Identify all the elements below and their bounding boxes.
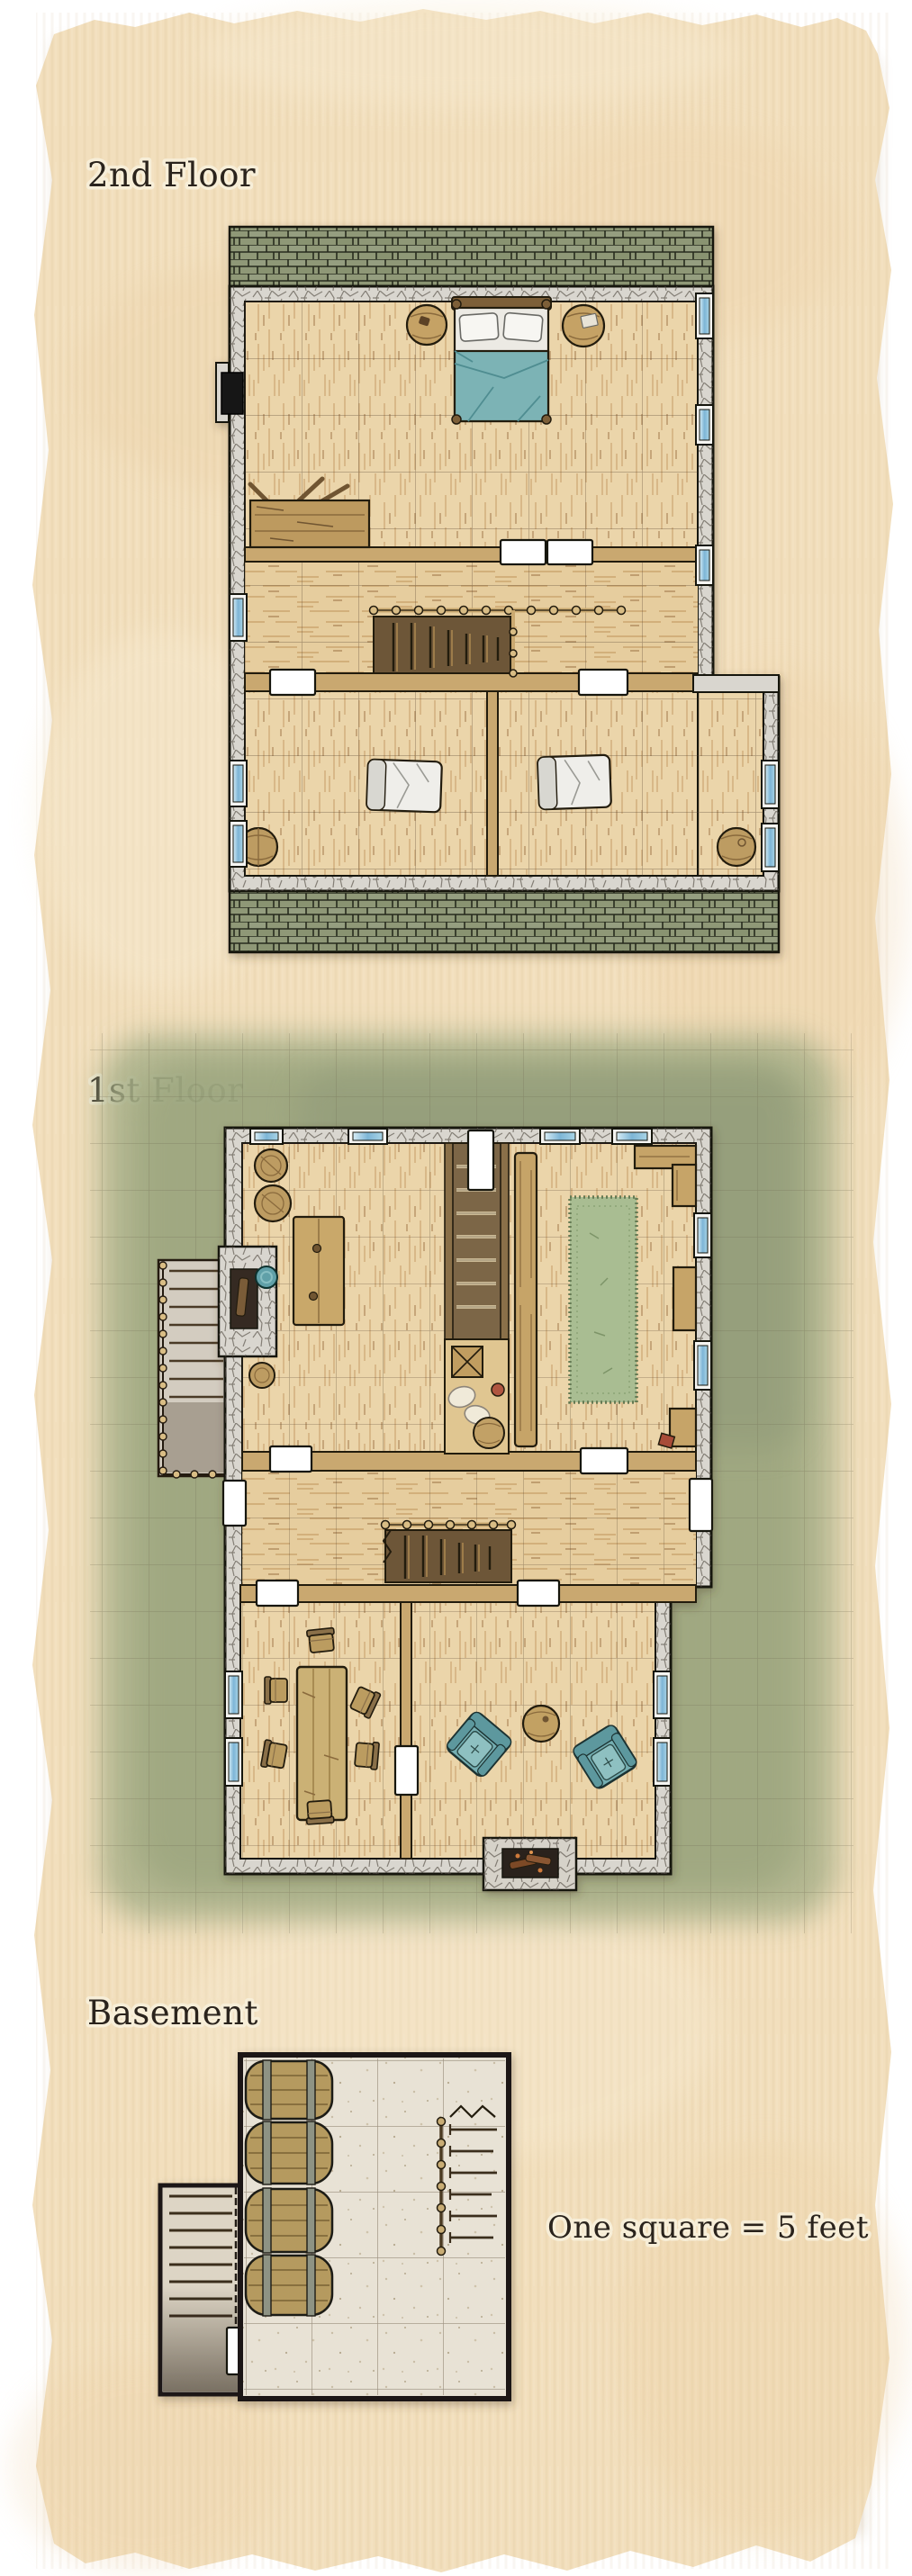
chair <box>261 1740 288 1770</box>
basement-entry-corridor <box>160 2185 246 2394</box>
window <box>694 1341 711 1390</box>
door-white <box>223 1481 246 1526</box>
chair <box>305 1800 334 1824</box>
south-fireplace <box>483 1838 576 1890</box>
window <box>654 1738 671 1786</box>
chair <box>307 1628 336 1653</box>
second-floor-label: 2nd Floor <box>87 156 256 194</box>
bedroll <box>366 760 442 813</box>
window <box>230 594 247 641</box>
hearth-fireplace <box>219 1247 277 1356</box>
window <box>762 824 779 871</box>
first-floor-plan <box>90 1033 853 1933</box>
door-white <box>270 670 315 695</box>
window <box>612 1129 652 1144</box>
pillow <box>459 313 499 342</box>
teal-blanket <box>455 351 548 421</box>
kitchen-barrel <box>255 1149 287 1182</box>
floorplan-svg: 2nd Floor 1st Floor Basement One square … <box>0 0 912 2576</box>
double-bed <box>452 297 551 424</box>
cellar-barrel <box>246 2255 332 2316</box>
window <box>225 1738 242 1786</box>
round-side-table <box>407 305 447 345</box>
red-jug <box>492 1383 504 1396</box>
window <box>696 293 713 338</box>
door-white <box>690 1479 712 1531</box>
scale-note: One square = 5 feet <box>547 2210 869 2246</box>
basement-label: Basement <box>87 1994 258 2032</box>
door-white <box>257 1581 298 1606</box>
roof-strip-bottom <box>230 889 779 952</box>
staircase-down <box>382 1521 516 1583</box>
chair <box>265 1677 287 1704</box>
cellar-barrel <box>246 2188 332 2253</box>
window <box>696 405 713 445</box>
front-door <box>468 1130 493 1190</box>
exterior-door-dark <box>221 373 243 414</box>
pillow <box>503 312 543 342</box>
bar-counter <box>515 1153 537 1446</box>
wall-bench <box>673 1267 696 1330</box>
parchment-map-page: 2nd Floor 1st Floor Basement One square … <box>0 0 912 2576</box>
door-white <box>395 1746 418 1795</box>
chair <box>355 1741 380 1770</box>
window <box>348 1129 387 1144</box>
window <box>250 1129 283 1144</box>
window <box>654 1671 671 1718</box>
dining-table <box>297 1667 347 1820</box>
door-white <box>518 1581 559 1606</box>
door-white <box>270 1446 312 1472</box>
cellar-barrel <box>246 2121 332 2184</box>
interior-wall <box>240 1585 696 1602</box>
window <box>762 761 779 808</box>
door-white <box>501 540 546 564</box>
round-side-table <box>563 305 604 347</box>
window <box>225 1671 242 1718</box>
roof-strip-top <box>230 227 713 288</box>
teal-cauldron <box>256 1266 277 1288</box>
bedroll <box>537 755 611 810</box>
small-barrel <box>249 1363 275 1388</box>
window <box>230 761 247 806</box>
stone-wall-jog <box>693 675 779 692</box>
bedroom-divider-wall <box>487 691 498 876</box>
door-white <box>581 1448 628 1473</box>
work-table <box>293 1217 344 1325</box>
window <box>540 1129 580 1144</box>
first-floor-building <box>219 1128 712 1890</box>
door-white <box>579 670 628 695</box>
second-floor-plan <box>216 227 779 952</box>
window <box>694 1213 711 1257</box>
interior-wall <box>245 547 698 562</box>
cellar-barrel <box>246 2060 332 2120</box>
door-white <box>547 540 592 564</box>
room-divider-wall <box>401 1602 411 1859</box>
window <box>230 821 247 867</box>
barrel-table <box>718 828 755 866</box>
second-floor-building <box>216 227 779 952</box>
round-table <box>523 1706 559 1742</box>
green-rug <box>570 1197 637 1402</box>
pantry-nook <box>445 1339 509 1454</box>
window <box>696 545 713 585</box>
kitchen-barrel <box>255 1185 291 1221</box>
